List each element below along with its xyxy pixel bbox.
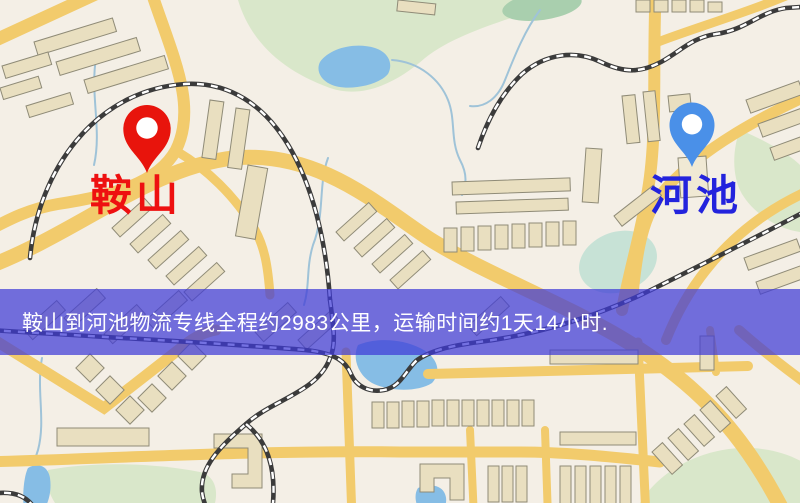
map-canvas[interactable]: 鞍山 河池 鞍山到河池物流专线全程约2983公里，运输时间约1天14小时. — [0, 0, 800, 503]
map-artwork — [0, 0, 800, 503]
origin-pin-icon[interactable] — [117, 99, 177, 179]
destination-pin-icon[interactable] — [662, 97, 722, 175]
route-info-text: 鞍山到河池物流专线全程约2983公里，运输时间约1天14小时. — [22, 307, 608, 337]
origin-city-label: 鞍山 — [76, 174, 196, 220]
route-info-banner: 鞍山到河池物流专线全程约2983公里，运输时间约1天14小时. — [0, 289, 800, 355]
destination-city-label: 河池 — [636, 174, 756, 220]
